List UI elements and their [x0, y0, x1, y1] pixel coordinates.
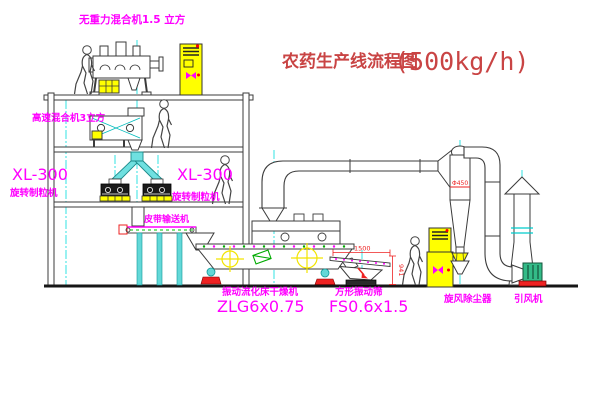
process-flow-drawing: 1500 941 Φ450 [0, 0, 600, 403]
recycle-pipe [464, 147, 513, 281]
flow-diagram-canvas: 1500 941 Φ450 [0, 0, 600, 403]
control-cabinet-top [180, 44, 202, 95]
control-cabinet-right [427, 228, 453, 287]
dryer-model-label: ZLG6x0.75 [217, 297, 305, 316]
cyclone-dia-dim: Φ450 [452, 180, 468, 187]
operator-figure-4 [403, 237, 423, 285]
granulator-left [100, 179, 130, 201]
conveyor-legs [137, 233, 182, 285]
spring-support-right [315, 269, 335, 285]
belt-conveyor [119, 225, 196, 285]
cyclone-label: 旋风除尘器 [443, 293, 492, 305]
fan-label: 引风机 [514, 293, 543, 305]
screen-model-label: FS0.6x1.5 [329, 297, 408, 316]
operator-figure-2 [152, 100, 172, 148]
flange-bolts [203, 245, 345, 247]
gravity-mixer [89, 42, 163, 95]
diagram-title-capacity: (500kg/h) [394, 47, 529, 76]
indicator-lamp-icon [196, 44, 199, 47]
granulator-right [142, 179, 172, 201]
spring-support-left [201, 268, 221, 284]
screen-length-dim: 1500 [354, 245, 371, 253]
belt-conveyor-label: 皮带输送机 [143, 213, 189, 225]
discharge-duct [132, 207, 144, 226]
granulator-right-model: XL-300 [177, 165, 233, 184]
granulator-left-name: 旋转制粒机 [9, 187, 58, 199]
high-speed-mixer-label: 高速混合机3立方 [32, 112, 106, 124]
granulator-right-name: 旋转制粒机 [171, 191, 220, 203]
gravity-mixer-label: 无重力混合机1.5 立方 [78, 13, 186, 26]
rotary-valve [452, 253, 468, 261]
granulator-left-model: XL-300 [12, 165, 68, 184]
